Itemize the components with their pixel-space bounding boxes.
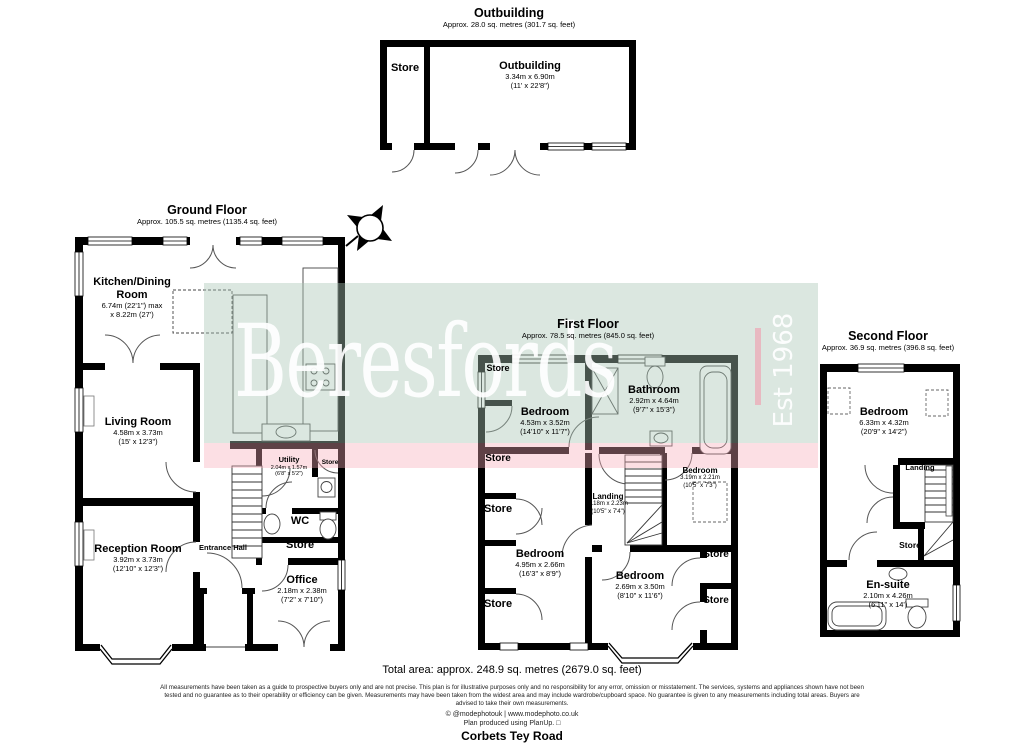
label-utility-store: Store	[314, 459, 346, 467]
second-floor-area: Approx. 36.9 sq. metres (396.8 sq. feet)	[778, 344, 998, 353]
disclaimer-line-2: tested and no guarantee as to their oper…	[0, 692, 1024, 699]
total-area-text: Total area: approx. 248.9 sq. metres (26…	[0, 664, 1024, 676]
label-sf-store: Store	[888, 540, 932, 550]
first-floor-title: First Floor	[478, 317, 698, 332]
ground-floor-title: Ground Floor	[97, 203, 317, 218]
label-utility: Utility 2.04m x 1.57m (6'8" x 5'2")	[258, 456, 320, 478]
label-ff-store-r1: Store	[698, 549, 734, 561]
disclaimer-line-3: advised to take their own measurements.	[0, 700, 1024, 707]
label-ff-bedroom-2: Bedroom 4.95m x 2.66m (16'3" x 8'9")	[488, 548, 592, 579]
first-floor-title-block: First Floor Approx. 78.5 sq. metres (845…	[478, 317, 698, 341]
label-living-room: Living Room 4.58m x 3.73m (15' x 12'3")	[92, 416, 184, 447]
label-entrance-hall: Entrance Hall	[196, 544, 250, 553]
produced-text: Plan produced using PlanUp. □	[0, 720, 1024, 727]
label-ff-bedroom-3: Bedroom 3.19m x 2.21m (10'5" x 7'3")	[668, 466, 732, 490]
label-bathroom: Bathroom 2.92m x 4.64m (9'7" x 15'3")	[598, 384, 710, 415]
label-outbuilding-store: Store	[382, 62, 428, 75]
first-floor-area: Approx. 78.5 sq. metres (845.0 sq. feet)	[478, 332, 698, 341]
ground-floor-area: Approx. 105.5 sq. metres (1135.4 sq. fee…	[97, 218, 317, 227]
label-hall-store: Store	[272, 539, 328, 552]
outbuilding-area: Approx. 28.0 sq. metres (301.7 sq. feet)	[379, 21, 639, 30]
ground-floor-title-block: Ground Floor Approx. 105.5 sq. metres (1…	[97, 203, 317, 227]
second-floor-title-block: Second Floor Approx. 36.9 sq. metres (39…	[778, 329, 998, 353]
label-outbuilding-room: Outbuilding 3.34m x 6.90m (11' x 22'8")	[450, 60, 610, 91]
label-sf-landing: Landing	[896, 464, 944, 473]
second-floor-title: Second Floor	[778, 329, 998, 344]
label-ensuite: En-suite 2.10m x 4.26m (6'11" x 14')	[834, 579, 942, 610]
label-ff-store-4: Store	[476, 598, 520, 611]
label-ff-landing: Landing 3.18m x 2.23m (10'5" x 7'4")	[580, 492, 636, 516]
label-ff-bedroom-1: Bedroom 4.53m x 3.52m (14'10" x 11'7")	[492, 406, 598, 437]
label-ff-store-r2: Store	[698, 595, 734, 607]
label-ff-bedroom-4: Bedroom 2.69m x 3.50m (8'10" x 11'6")	[588, 570, 692, 601]
label-office: Office 2.18m x 2.38m (7'2" x 7'10")	[256, 574, 348, 605]
disclaimer-line-1: All measurements have been taken as a gu…	[0, 684, 1024, 691]
address-title: Corbets Tey Road	[0, 729, 1024, 743]
label-ff-store-1: Store	[478, 363, 518, 374]
floorplan-page: Beresfords Est 1968 Outbuilding Approx. …	[0, 0, 1024, 744]
label-kitchen-dining-room: Kitchen/Dining Room 6.74m (22'1") max x …	[86, 276, 178, 320]
label-ff-store-2: Store	[476, 453, 520, 465]
label-ff-store-3: Store	[476, 503, 520, 516]
label-reception-room: Reception Room 3.92m x 3.73m (12'10" x 1…	[88, 543, 188, 574]
label-sf-bedroom: Bedroom 6.33m x 4.32m (20'9" x 14'2")	[832, 406, 936, 437]
outbuilding-title-block: Outbuilding Approx. 28.0 sq. metres (301…	[379, 6, 639, 30]
compass-icon	[346, 205, 392, 251]
credit-text: © @modephotouk | www.modephoto.co.uk	[0, 711, 1024, 718]
outbuilding-title: Outbuilding	[379, 6, 639, 21]
label-wc: WC	[284, 515, 316, 528]
